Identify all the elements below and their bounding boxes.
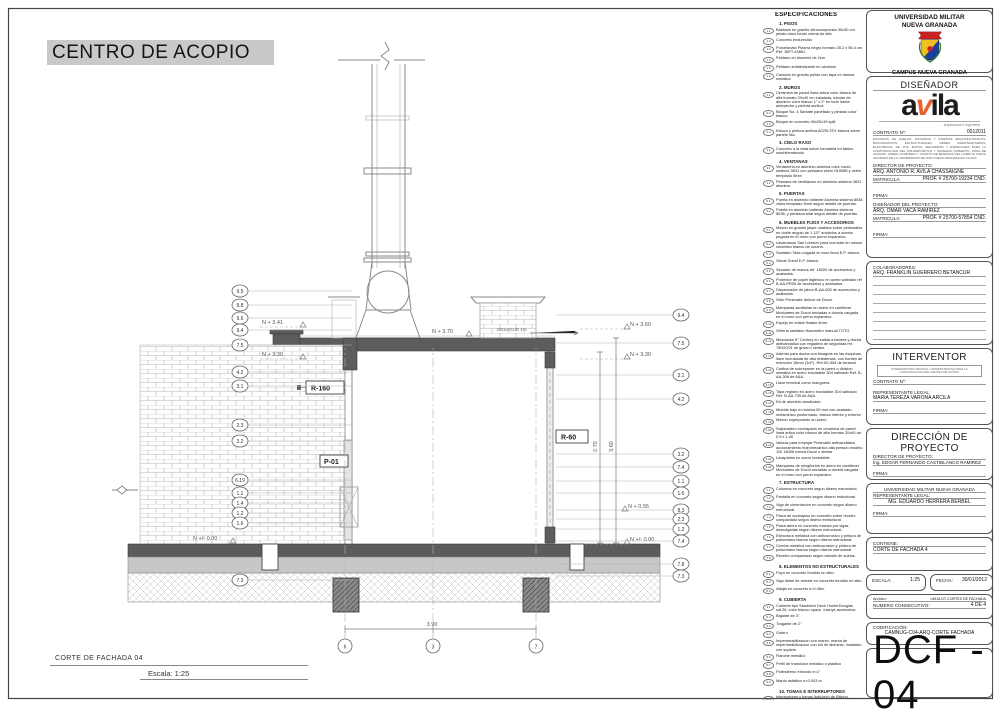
spec-item-text: Pantalla en concreto segun diseno estruc…: [776, 495, 856, 499]
drawing-title: CORTE DE FACHADA 04: [55, 655, 143, 662]
spec-item: 6.11Griferia sanitario fluxometro manual…: [763, 329, 863, 336]
spec-item: 6.6Protector de papel higienico en acero…: [763, 278, 863, 287]
spec-item: 8.1Poyo en concreto fundido en sitio.: [763, 571, 863, 578]
spec-item-text: Lavamanos San Lorenzo para incrustar en …: [776, 241, 863, 250]
project-designer-name: ARQ. OMAR VACA RAMIREZ: [873, 208, 986, 215]
consecutive-label: NUMERO CONSECUTIVO:: [873, 603, 930, 608]
spec-item-text: Perfil de transicion metalico o plastico: [776, 662, 841, 666]
umng-legal-block: UNIVERSIDAD MILITAR NUEVA GRANADA REPRES…: [866, 483, 993, 534]
spec-item-text: Poliestireno extruido e=1": [776, 670, 820, 674]
file-block: Archivo: UM-M-DT-CORTES DE FACHADA NUMER…: [866, 594, 993, 619]
director-matricula: PROF. # 25700-19234 CND.: [923, 176, 986, 182]
designer-block: DISEÑADOR avila arquitectura e ingenieri…: [866, 76, 993, 258]
spec-section-heading: 9. CUBIERTA: [779, 597, 863, 602]
page-title: CENTRO DE ACOPIO: [47, 40, 274, 65]
blank-line: [873, 286, 986, 295]
spec-item: 6.21Valvula para empujar Presmatic antiv…: [763, 441, 863, 454]
spec-item-number: 7.5: [763, 524, 774, 531]
spec-item-text: Placa de contrapiso en concreto sobre re…: [776, 514, 863, 523]
spec-item-number: 6.12: [763, 338, 774, 345]
firma-label: FIRMA:: [873, 408, 986, 414]
interventor-note: INTERVENTORIA TECNICA Y ADMINISTRATIVA P…: [877, 365, 982, 377]
avila-logo-v: v: [916, 89, 931, 122]
university-name-line1: UNIVERSIDAD MILITAR: [894, 14, 964, 21]
floor-assembly: [128, 544, 660, 612]
p01-label: P-01: [324, 459, 339, 466]
spec-item-text: Alfajia en concreto e=0.08m: [776, 587, 824, 591]
spec-item: 9.9Manto asfaltico e=0.003 m: [763, 679, 863, 686]
spec-item-number: 8.3: [763, 588, 774, 595]
spec-section-heading: 7. ESTRUCTURA: [779, 480, 863, 485]
blank-line: [873, 322, 986, 331]
scale-label: ESCALA:: [872, 578, 891, 583]
spec-item-text: Poyo en concreto fundido en sitio.: [776, 571, 835, 575]
grid-bubbles: 637: [338, 348, 543, 653]
spec-item: 5.2Puerta en aluminio batiente Alumina s…: [763, 208, 863, 217]
callout-number: 7.3: [678, 574, 685, 580]
spec-item-number: 4.1: [763, 165, 774, 172]
interventor-header: INTERVENTOR: [873, 352, 986, 363]
spec-item: 1.2Concreto endurecido: [763, 38, 863, 45]
spec-item: 9.4Gotero: [763, 631, 863, 638]
spec-section-heading: 5. PUERTAS: [779, 191, 863, 196]
spec-item: 1.5Peldano antideslizante en aluminio: [763, 65, 863, 72]
university-name: UNIVERSIDAD MILITAR NUEVA GRANADA: [873, 14, 986, 30]
spec-item-number: 7.8: [763, 555, 774, 562]
spec-item-text: Espejo en cristal flotado 6mm.: [776, 321, 828, 325]
spec-item-number: 6.15: [763, 382, 774, 389]
spec-item-text: Bloque en concreto 40x20x15 split: [776, 120, 835, 124]
spec-section-heading: 2. MUROS: [779, 85, 863, 90]
level-text: N + 3.41: [262, 320, 283, 326]
spec-section-heading: 8. ELEMENTOS NO ESTRUCTURALES: [779, 564, 863, 569]
date-box: FECHA: 30/01/2012: [930, 574, 993, 591]
avila-logo-ila: ila: [931, 89, 958, 122]
spec-item-text: Protector de papel higienico en acero sa…: [776, 278, 863, 287]
spec-item: 6.23Mamparas de mingitorios en acero en …: [763, 464, 863, 477]
spec-item-text: Salpicadero enchapado en ceramica de par…: [776, 427, 863, 440]
university-crest: [913, 31, 947, 63]
spec-item-text: Columna en concreto segun diseno estruct…: [776, 487, 858, 491]
spec-item-text: Mamparas de mingitorios en acero en cant…: [776, 464, 863, 477]
spec-item-text: Orinal Grival E.P. blanco.: [776, 259, 819, 263]
spec-item-text: Persiana de ventilacion en aluminio sist…: [776, 180, 863, 189]
spec-item-text: Ceramica de pared linea artica color bla…: [776, 91, 863, 109]
callout-number: 2.3: [678, 517, 685, 523]
roof-upstand: [328, 297, 360, 338]
footing: [333, 578, 359, 612]
spec-item: 6.18Mueble bajo en lamina 50 mm con acab…: [763, 408, 863, 417]
spec-item-text: Baldosin en granito vitrocompuesto 30x30…: [776, 28, 863, 37]
spec-item-text: Grifo Presmatic deluxe de Docol.: [776, 298, 833, 302]
callout-number: 3.1: [678, 373, 685, 379]
spec-item-number: 1.3: [763, 46, 774, 53]
scale-underline: [140, 679, 308, 680]
spec-item: 6.1Meson en granito jaspe ubatuba sobre …: [763, 226, 863, 239]
spec-item: 2.3Bloque en concreto 40x20x15 split: [763, 120, 863, 127]
spec-item: 6.12Mezclador 8" Century en salida a ban…: [763, 338, 863, 351]
spec-item-number: 6.4: [763, 260, 774, 267]
spec-item-text: Tapa registro en acero inoxidable 304 sa…: [776, 390, 863, 399]
spec-item-text: Bajante de 3".: [776, 614, 800, 618]
spec-item-text: Cortina de sobreponer en la pared o divi…: [776, 367, 863, 380]
spec-item-text: Viga de cimentacion en concreto segun di…: [776, 503, 863, 512]
blank-line: [873, 277, 986, 286]
spec-item-number: 9.2: [763, 614, 774, 621]
callout-number: 7.5: [237, 343, 244, 349]
spec-item-number: 6.9: [763, 307, 774, 314]
spec-item-text: Canuela en granito pulido con tapa en la…: [776, 73, 863, 82]
spec-item-text: Lavaplatos en acero inoxidable: [776, 456, 830, 460]
spec-item-text: Concreto a la vista sobre formaleta en t…: [776, 147, 863, 156]
contract-scope-fineprint: ESTUDIOS DE SUELOS, ESTUDIOS Y DISEÑOS A…: [873, 138, 986, 161]
spec-item-text: Dispensador de jabon B-AA-500 de accesor…: [776, 288, 863, 297]
spec-item-number: 7.2: [763, 495, 774, 502]
spec-item: 6.15Llave terminal como manguera.: [763, 381, 863, 388]
spec-item-number: 6.6: [763, 278, 774, 285]
spec-item: 6.3Sanitario Tasa colgada al muro linea …: [763, 251, 863, 258]
callout-number: 1.1: [678, 479, 685, 485]
spec-item-text: Recebo compactado segun estudio de suelo…: [776, 554, 856, 558]
interventor-block: INTERVENTOR INTERVENTORIA TECNICA Y ADMI…: [866, 348, 993, 425]
spec-item-text: Placa aerea en concreto maciza por vigas…: [776, 524, 863, 533]
spec-item-number: 6.13: [763, 353, 774, 360]
spec-item: 9.6Flanche metalico: [763, 654, 863, 661]
firma-label: FIRMA:: [873, 232, 986, 238]
spec-item-text: Estuco y pintura acrilica ACRILTEX blanc…: [776, 129, 863, 138]
spec-item: 3.1Concreto a la vista sobre formaleta e…: [763, 147, 863, 156]
contract-label: CONTRATO Nº:: [873, 130, 906, 135]
callout-number: 3.1: [237, 384, 244, 390]
contains-value: CORTE DE FACHADA 4: [873, 547, 986, 554]
spec-item: 6.5Secador de manos ref. 18200 de acceso…: [763, 268, 863, 277]
callout-number: 7.5: [678, 341, 685, 347]
spec-item-text: Tragante de 2".: [776, 622, 803, 626]
spec-item-text: Interruptores y tomas light-tech de Btic…: [776, 695, 849, 699]
spec-item: 6.10Espejo en cristal flotado 6mm.: [763, 321, 863, 328]
spec-item-number: 9.7: [763, 662, 774, 669]
grid-number: 3: [432, 644, 435, 650]
spec-item: 9.3Tragante de 2".: [763, 622, 863, 629]
spec-item-number: 9.3: [763, 623, 774, 630]
spec-item-number: 6.23: [763, 464, 774, 471]
spec-item-number: 2.1: [763, 92, 774, 99]
canuela-channel: [570, 544, 584, 570]
level-text: N + 3.30: [630, 352, 651, 358]
collaborator-name: ARQ. FRANKLIN GUERRERO BETANCUR: [873, 270, 986, 277]
spec-item: 6.22Lavaplatos en acero inoxidable: [763, 456, 863, 463]
collaborator-blank-lines: [873, 277, 986, 340]
file-label: Archivo:: [873, 597, 887, 601]
spec-item: 7.1Columna en concreto segun diseno estr…: [763, 487, 863, 494]
spec-item-text: Bloque No. 4 Santafe panetado y pintado …: [776, 110, 863, 119]
canuela-channel: [262, 544, 278, 570]
chimney-stack: [338, 42, 425, 338]
spec-item-number: 10.1: [763, 696, 774, 700]
spec-section-heading: 3. CIELO RASO: [779, 140, 863, 145]
spec-item: 7.2Pantalla en concreto segun diseno est…: [763, 495, 863, 502]
spec-item: 1.1Baldosin en granito vitrocompuesto 30…: [763, 28, 863, 37]
spec-item-text: Griferia sanitario fluxometro manual TOT…: [776, 329, 850, 333]
spec-item-text: Mueble bajo en lamina 50 mm con acabado …: [776, 408, 863, 417]
spec-item: 2.4Estuco y pintura acrilica ACRILTEX bl…: [763, 129, 863, 138]
callout-number: 2.3: [237, 423, 244, 429]
level-text: N + 3.60: [630, 322, 651, 328]
callout-number: 1.1: [237, 491, 244, 497]
date-value: 30/01/2012: [962, 577, 987, 583]
dim-right-inner: 2.70: [593, 441, 599, 452]
spec-item: 7.3Viga de cimentacion en concreto segun…: [763, 503, 863, 512]
scale-value: 1:25: [910, 577, 920, 583]
spec-item-number: 6.21: [763, 442, 774, 449]
spec-item-number: 7.6: [763, 534, 774, 541]
spec-item-text: Cubierta tipo Sandwich Deck HunterDougla…: [776, 604, 863, 613]
spec-item: 1.4Peldano en aluminio de 2cm: [763, 56, 863, 63]
spec-item-number: 8.1: [763, 571, 774, 578]
spec-item-text: Porcelanato Pizarra negro formato 28.2 x…: [776, 46, 863, 55]
spec-item: 7.8Recebo compactado segun estudio de su…: [763, 554, 863, 561]
spec-item-text: Gotero: [776, 631, 788, 635]
spec-item-text: Flanche metalico: [776, 654, 805, 658]
spec-item: 4.2Persiana de ventilacion en aluminio s…: [763, 180, 863, 189]
consecutive-value: 4 DE 4: [971, 602, 986, 608]
spec-item-number: 9.1: [763, 604, 774, 611]
blank-line: [873, 295, 986, 304]
spec-item-number: 9.4: [763, 631, 774, 638]
spec-item-number: 6.20: [763, 427, 774, 434]
spec-item: 9.7Perfil de transicion metalico o plast…: [763, 662, 863, 669]
spec-item: 7.4Placa de contrapiso en concreto sobre…: [763, 514, 863, 523]
spec-item: 9.8Poliestireno extruido e=1": [763, 670, 863, 677]
matricula-label: MATRICULA:: [873, 216, 900, 221]
spec-item-text: Llave terminal como manguera.: [776, 381, 831, 385]
level-text: N + 3.70: [432, 329, 453, 335]
sheet: { "sheet": { "project_title": "CENTRO DE…: [0, 0, 1000, 707]
callout-number: 6.19: [235, 478, 245, 484]
spec-item: 5.1Puerta en aluminio batiente Alumina s…: [763, 198, 863, 207]
spec-item: 7.5Placa aerea en concreto maciza por vi…: [763, 524, 863, 533]
spec-item-number: 6.19: [763, 419, 774, 426]
callout-number: 1.6: [678, 491, 685, 497]
spec-item-number: 6.22: [763, 456, 774, 463]
specifications-title: ESPECIFICACIONES: [775, 12, 863, 18]
rep-legal-name: MARIA TEREZA VARONA ARCILA: [873, 395, 986, 402]
spec-section-heading: 4. VENTANAS: [779, 159, 863, 164]
spec-item-number: 6.8: [763, 298, 774, 305]
callout-number: 3.2: [237, 439, 244, 445]
spec-item-text: Kit de aluminio anodizado: [776, 400, 821, 404]
spec-item-number: 6.14: [763, 367, 774, 374]
firma-label: FIRMA:: [873, 471, 986, 477]
callout-number: 7.4: [678, 539, 685, 545]
window-mullion: [545, 352, 555, 543]
spec-item-text: Puerta en aluminio batiente Alumina sist…: [776, 198, 863, 207]
collaborators-block: COLABORADORES: ARQ. FRANKLIN GUERRERO BE…: [866, 261, 993, 345]
spec-item-text: Mamparas sanitarias en acero en cantilev…: [776, 306, 863, 319]
spec-item-number: 9.9: [763, 679, 774, 686]
spec-item-number: 1.5: [763, 65, 774, 72]
spec-item-text: Manto asfaltico e=0.003 m: [776, 679, 822, 683]
spec-item: 2.1Ceramica de pared linea artica color …: [763, 91, 863, 109]
r60-label: R-60: [561, 435, 576, 442]
desague-label: DESAGUE 1%: [497, 327, 527, 332]
dim-right-outer: 3.60: [609, 441, 615, 452]
spec-item-number: 4.2: [763, 180, 774, 187]
specifications-column: ESPECIFICACIONES 1. PISOS1.1Baldosin en …: [763, 12, 863, 700]
spec-item-number: 6.5: [763, 268, 774, 275]
direccion-header: DIRECCIÓN DE PROYECTO: [873, 432, 986, 454]
spec-item: 6.19Meson superpuesto en acero: [763, 418, 863, 425]
spec-item: 1.6Canuela en granito pulido con tapa en…: [763, 73, 863, 82]
r160-label: R-160: [311, 386, 330, 393]
spec-item-text: Cercha metalica con anticorrosivo y pint…: [776, 544, 863, 553]
spec-item-text: Puerta en aluminio batiente Alumina sist…: [776, 208, 863, 217]
spec-item-text: Meson en granito jaspe ubatuba sobre ped…: [776, 226, 863, 239]
spec-section-heading: 10. TOMAS E INTERRUPTORES: [779, 689, 863, 694]
scale-box: ESCALA: 1:25: [866, 574, 926, 591]
callout-number: 4.2: [237, 370, 244, 376]
spec-item-number: 9.8: [763, 671, 774, 678]
level-text: N +/- 0.00: [630, 537, 654, 543]
spec-item-text: Mezclador 8" Century en salida a banera …: [776, 338, 863, 351]
designer-matricula: PROF. # 25700-57854 CND.: [923, 215, 986, 221]
avila-logo: avila: [873, 91, 986, 121]
firma-label: FIRMA:: [873, 193, 986, 199]
callout-number: 1.4: [237, 501, 244, 507]
spec-item-number: 6.7: [763, 288, 774, 295]
spec-item-text: Asiento para ducha con bisagras en las e…: [776, 352, 863, 365]
spec-item: 9.5Impermeabilizacion con manto, manta d…: [763, 639, 863, 652]
level-text: N +/- 0.00: [193, 536, 217, 542]
spec-item-text: Impermeabilizacion con manto, manta de i…: [776, 639, 863, 652]
spec-item: 7.7Cercha metalica con anticorrosivo y p…: [763, 544, 863, 553]
blank-line: [873, 331, 986, 340]
spec-item-number: 5.2: [763, 208, 774, 215]
date-label: FECHA:: [936, 578, 953, 583]
spec-item: 6.20Salpicadero enchapado en ceramica de…: [763, 427, 863, 440]
spec-item-number: 1.6: [763, 73, 774, 80]
spec-item-text: Peldano en aluminio de 2cm: [776, 56, 825, 60]
spec-item-number: 8.2: [763, 579, 774, 586]
contract-value: 0012011: [967, 129, 986, 135]
right-callout-column: 9.47.53.14.23.27.41.11.68.32.31.27.47.87…: [556, 309, 689, 582]
spec-item-number: 1.2: [763, 38, 774, 45]
project-direction-block: DIRECCIÓN DE PROYECTO DIRECTOR DE PROYEC…: [866, 428, 993, 480]
blank-line: [873, 313, 986, 322]
level-text: N + 3.30: [262, 352, 283, 358]
spec-item: 2.2Bloque No. 4 Santafe panetado y pinta…: [763, 110, 863, 119]
spec-item-text: Viga dintel de remate en concreto fundid…: [776, 579, 862, 583]
callout-number: 7.8: [678, 562, 685, 568]
spec-item-number: 7.4: [763, 514, 774, 521]
spec-item: 6.13Asiento para ducha con bisagras en l…: [763, 352, 863, 365]
spec-item-number: 6.16: [763, 390, 774, 397]
spec-item: 6.7Dispensador de jabon B-AA-500 de acce…: [763, 288, 863, 297]
spec-item-text: Estructura metalica con anticorrosivo y …: [776, 534, 863, 543]
dim-bottom: 3.90: [427, 622, 438, 628]
umng-rep-name: MG. EDUARDO HERRERA BERBEL: [873, 499, 986, 506]
callout-number: 9.5: [237, 289, 244, 295]
spec-item-number: 7.3: [763, 504, 774, 511]
level-text: N + 0.55: [628, 504, 649, 510]
spec-item-number: 3.1: [763, 147, 774, 154]
callout-number: 1.6: [237, 521, 244, 527]
spec-item: 6.4Orinal Grival E.P. blanco.: [763, 259, 863, 266]
callout-number: 4.2: [678, 397, 685, 403]
spec-item-number: 6.17: [763, 400, 774, 407]
spec-item: 4.1Ventaneria en aluminio alumina color …: [763, 165, 863, 178]
spec-item-number: 6.3: [763, 251, 774, 258]
spec-item: 10.1Interruptores y tomas light-tech de …: [763, 695, 863, 700]
bottom-dimension: 3.90: [345, 622, 536, 633]
spec-item-number: 1.1: [763, 28, 774, 35]
spec-item: 9.1Cubierta tipo Sandwich Deck HunterDou…: [763, 604, 863, 613]
firma-label: FIRMA:: [873, 511, 986, 517]
file-value: UM-M-DT-CORTES DE FACHADA: [930, 597, 986, 601]
callout-number: 7.4: [678, 465, 685, 471]
director-name: ARQ. ANTONIO R. AVILA CHASSAIGNE: [873, 169, 986, 176]
spec-item-text: Valvula para empujar Presmatic antivanda…: [776, 441, 863, 454]
spec-item: 6.9Mamparas sanitarias en acero en canti…: [763, 306, 863, 319]
spec-item: 7.6Estructura metalica con anticorrosivo…: [763, 534, 863, 543]
spec-item: 6.2Lavamanos San Lorenzo para incrustar …: [763, 241, 863, 250]
scale-note: Escala: 1:25: [148, 669, 189, 678]
spec-item-number: 2.4: [763, 129, 774, 136]
university-name-line2: NUEVA GRANADA: [902, 22, 957, 29]
sheet-code-block: DCF - 04: [866, 648, 993, 698]
right-dimensions: 2.70 3.60: [593, 338, 619, 543]
grid-number: 6: [344, 644, 347, 650]
callout-number: 9.8: [237, 303, 244, 309]
callout-number: 9.4: [237, 328, 244, 334]
title-underline: [50, 665, 308, 666]
spec-section-heading: 6. MUEBLES FIJOS Y ACCESORIOS: [779, 220, 863, 225]
spec-item-text: Secador de manos ref. 18200 de accesorio…: [776, 268, 863, 277]
spec-item-number: 2.2: [763, 110, 774, 117]
spec-section-heading: 1. PISOS: [779, 21, 863, 26]
spec-item: 1.3Porcelanato Pizarra negro formato 28.…: [763, 46, 863, 55]
spec-item-number: 9.6: [763, 654, 774, 661]
spec-item-number: 7.1: [763, 487, 774, 494]
spec-item-text: Meson superpuesto en acero: [776, 418, 826, 422]
spec-item: 9.2Bajante de 3".: [763, 614, 863, 621]
spec-item-number: 2.3: [763, 121, 774, 128]
university-block: UNIVERSIDAD MILITAR NUEVA GRANADA CAMPUS…: [866, 10, 993, 73]
callout-number: 1.2: [237, 511, 244, 517]
callout-number: 9.6: [237, 316, 244, 322]
spec-item-number: 6.10: [763, 321, 774, 328]
spec-item: 8.3Alfajia en concreto e=0.08m: [763, 587, 863, 594]
spec-item-text: Ventaneria en aluminio alumina color cru…: [776, 165, 863, 178]
avila-logo-a: a: [901, 89, 916, 122]
spec-item: 6.17Kit de aluminio anodizado: [763, 400, 863, 407]
spec-item-number: 9.5: [763, 640, 774, 647]
spec-item-number: 1.4: [763, 57, 774, 64]
section-cut-marker: [112, 486, 138, 494]
specifications-list: 1. PISOS1.1Baldosin en granito vitrocomp…: [763, 21, 863, 700]
spec-item: 6.14Cortina de sobreponer en la pared o …: [763, 367, 863, 380]
spec-item-number: 6.2: [763, 241, 774, 248]
callout-number: 1.2: [678, 527, 685, 533]
contains-block: CONTIENE: CORTE DE FACHADA 4: [866, 537, 993, 571]
matricula-label: MATRICULA:: [873, 177, 900, 182]
spec-item-number: 6.11: [763, 330, 774, 337]
spec-item-number: 5.1: [763, 198, 774, 205]
spec-item: 6.8Grifo Presmatic deluxe de Docol.: [763, 298, 863, 305]
spec-item-number: 7.7: [763, 544, 774, 551]
spec-item-number: 6.1: [763, 227, 774, 234]
callout-number: 3.2: [678, 452, 685, 458]
